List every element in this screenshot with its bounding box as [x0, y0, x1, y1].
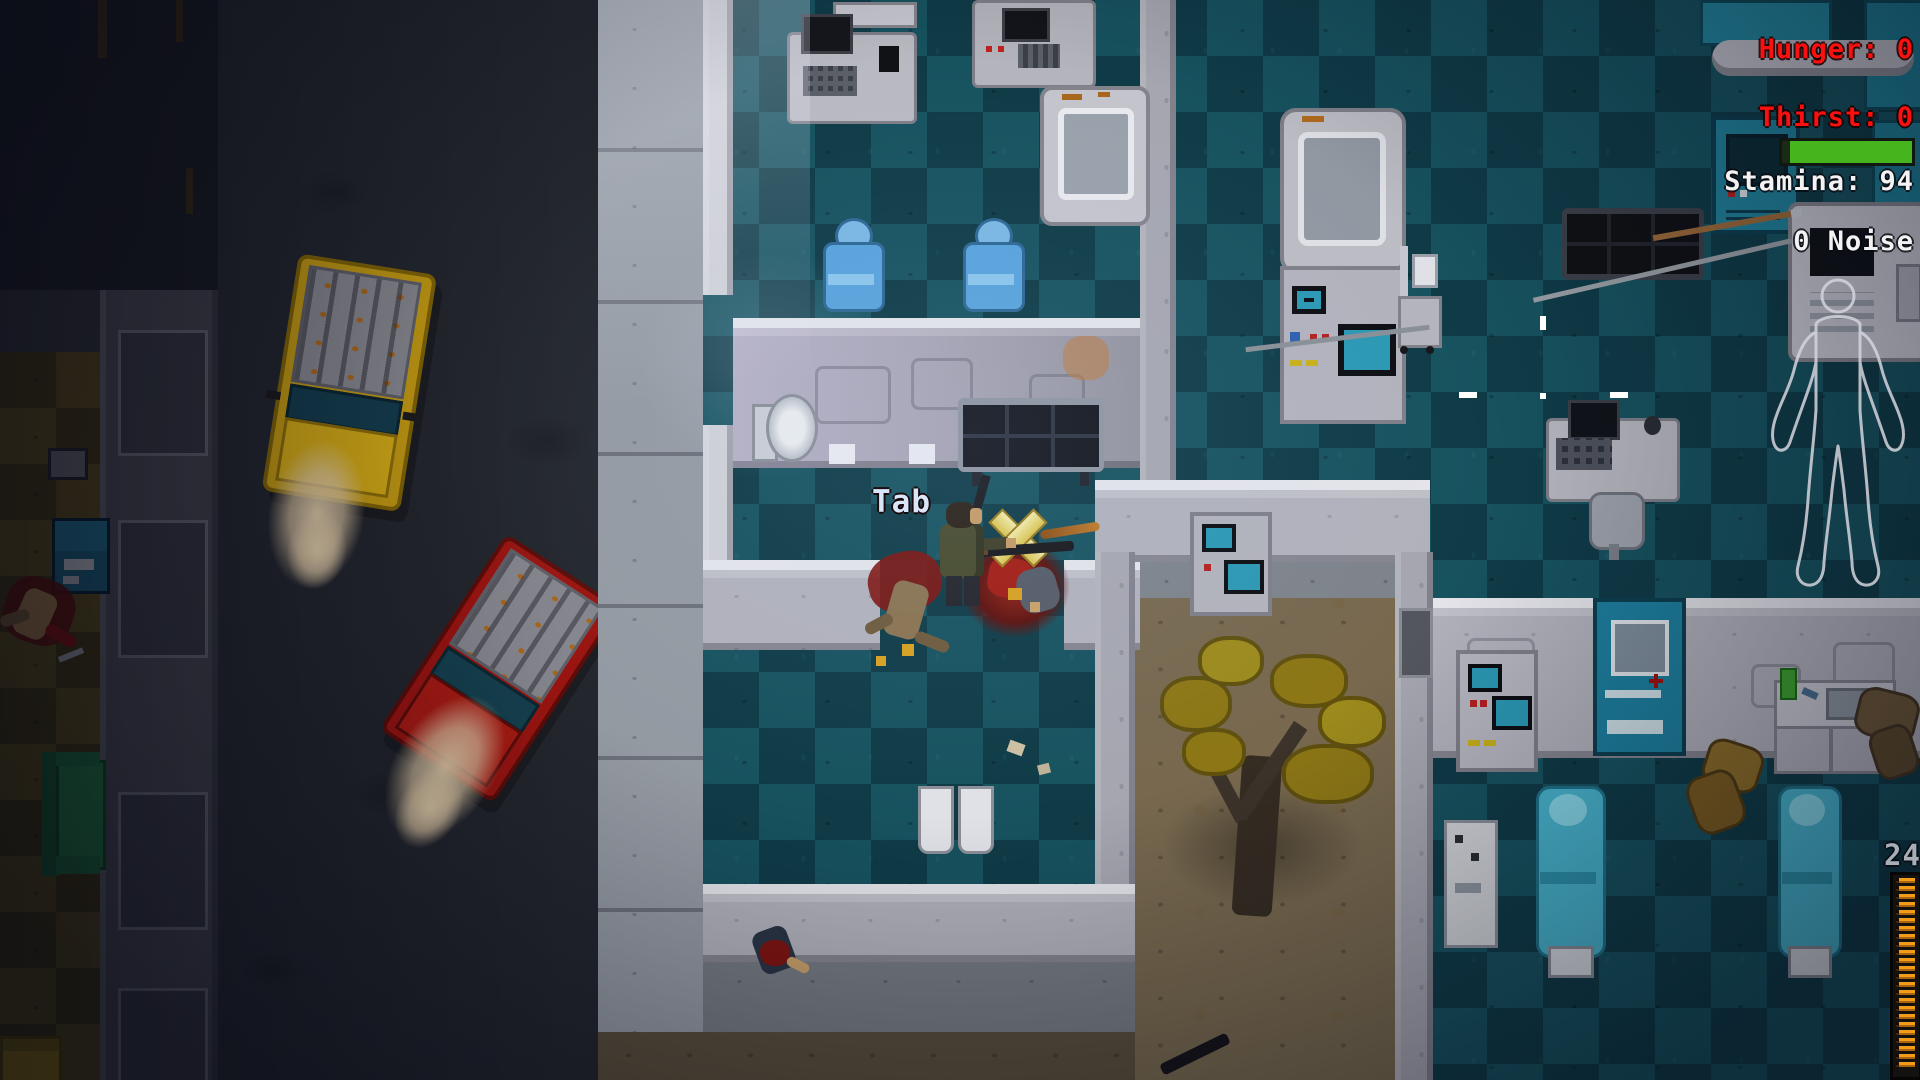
ammo-round — [1896, 942, 1915, 947]
sofa-cushions — [963, 405, 1099, 467]
wall-roomB-south-west — [703, 560, 880, 650]
ammo-round — [1896, 974, 1915, 979]
office-chair — [1585, 492, 1643, 562]
corpse-loot — [876, 656, 886, 666]
tree-foliage — [1198, 636, 1264, 686]
ammo-round — [1896, 1054, 1915, 1059]
urinal — [958, 786, 994, 854]
ammo-round — [1896, 998, 1915, 1003]
hunger-readout: Hunger: 0 — [1759, 34, 1914, 65]
crosshair-icon — [1540, 316, 1546, 330]
corpse-limb — [785, 955, 811, 975]
pillow — [1549, 794, 1587, 826]
ammo-round — [1896, 910, 1915, 915]
ammo-count: 24 — [1884, 838, 1920, 872]
rust-speck — [1302, 116, 1324, 122]
stamina-bar-fill — [1790, 141, 1912, 163]
wall-roomB-east — [1140, 318, 1176, 480]
machine-dot — [1471, 853, 1479, 861]
office-desk — [1546, 414, 1678, 498]
ammo-round — [1896, 1030, 1915, 1035]
incubator-machine — [1040, 86, 1150, 226]
screen — [1202, 524, 1236, 552]
label-yellow — [1468, 740, 1480, 746]
office-desk — [972, 0, 1090, 90]
rust-speck — [1098, 92, 1110, 97]
apartment-building — [0, 0, 218, 1080]
blanket-band — [1540, 872, 1596, 884]
wall-roomC-east — [1095, 552, 1135, 884]
street-stain — [300, 170, 370, 214]
player-legs — [946, 576, 962, 606]
machine-slot — [1455, 883, 1481, 893]
incubator-window — [1058, 108, 1134, 200]
sidewalk — [598, 0, 703, 1080]
player-face — [970, 508, 982, 524]
door-window — [1611, 620, 1669, 676]
ammo-round — [1896, 1014, 1915, 1019]
ammo-round — [1896, 934, 1915, 939]
ammo-round — [1896, 966, 1915, 971]
machine-dot — [1455, 835, 1463, 843]
screen — [1468, 664, 1502, 692]
wall-base-trim — [909, 444, 935, 464]
iv-cart — [1392, 246, 1444, 358]
hospital-bed — [1536, 786, 1600, 972]
label-yellow — [1290, 360, 1302, 366]
ammo-round — [1896, 990, 1915, 995]
chair-band — [828, 274, 874, 285]
computer-monitor — [1568, 400, 1620, 440]
ammo-round — [1896, 902, 1915, 907]
waiting-chair — [963, 218, 1019, 314]
thirst-readout: Thirst: 0 — [1759, 102, 1914, 133]
screen — [1492, 696, 1532, 730]
tree-foliage — [1182, 728, 1246, 776]
keyboard — [1018, 44, 1060, 68]
computer-monitor — [801, 14, 853, 54]
teal-medical-door — [1593, 598, 1686, 756]
player-body — [940, 524, 984, 578]
green-bottle — [1780, 668, 1797, 700]
ammo-round — [1896, 926, 1915, 931]
toilet — [752, 386, 814, 464]
chair-band — [968, 274, 1014, 285]
player-hand — [1006, 538, 1016, 548]
status-led — [986, 46, 992, 52]
scanner-window — [1298, 132, 1386, 246]
ammo-round — [1896, 950, 1915, 955]
stamina-readout: Stamina: 94 — [1724, 166, 1914, 197]
lab-machine — [1456, 650, 1538, 772]
waiting-chair — [823, 218, 879, 314]
red-cross-icon — [1649, 674, 1663, 688]
building-dim-overlay — [0, 0, 218, 1080]
wall-window — [1399, 608, 1433, 678]
iv-bag — [1412, 254, 1438, 288]
chair-stem — [1609, 544, 1619, 560]
ammo-round — [1896, 1022, 1915, 1027]
corpse-limb — [913, 630, 951, 655]
street-stain — [505, 415, 591, 467]
blanket-band — [1782, 872, 1832, 884]
cart-wheel — [1400, 346, 1408, 354]
ammo-round — [1896, 1038, 1915, 1043]
ct-scanner-machine — [1280, 108, 1398, 416]
ammo-magazine-bar — [1890, 872, 1920, 1080]
hospital-west-wall — [703, 0, 733, 295]
ammo-round — [1896, 918, 1915, 923]
ammo-round — [1896, 1006, 1915, 1011]
debris-pile — [1850, 686, 1920, 776]
tree-foliage — [1318, 696, 1386, 748]
street-stain — [240, 950, 306, 990]
screen — [1292, 286, 1326, 314]
wall-panel-outline — [815, 366, 891, 424]
debris-pile — [1686, 742, 1766, 838]
urinal — [918, 786, 954, 854]
player-survivor — [928, 496, 1078, 616]
rust-speck — [1062, 94, 1082, 100]
game-viewport[interactable]: Hunger: 0 Thirst: 0 Stamina: 94 0 Noise … — [0, 0, 1920, 1080]
sofa-leg — [1080, 472, 1089, 486]
navy-sofa — [958, 398, 1104, 482]
body-outline-icon — [1756, 262, 1920, 602]
keyboard — [1556, 438, 1612, 470]
label-yellow — [1306, 360, 1318, 366]
stamina-bar — [1779, 138, 1915, 166]
player-legs — [964, 576, 980, 606]
zombie-corpse — [746, 920, 812, 990]
keyboard — [803, 66, 857, 96]
door-kickplate — [1607, 720, 1663, 734]
toilet-bowl — [766, 394, 818, 462]
iv-machine — [1444, 820, 1498, 948]
label-yellow — [1484, 740, 1496, 746]
ammo-round — [1896, 886, 1915, 891]
cart-wheel — [1426, 346, 1434, 354]
interact-prompt: Tab — [872, 484, 931, 520]
computer-monitor — [1002, 8, 1050, 42]
dead-tree — [1142, 636, 1402, 936]
ammo-round — [1896, 878, 1915, 883]
ammo-round — [1896, 894, 1915, 899]
pillow — [1789, 794, 1825, 826]
lab-machine — [1190, 512, 1272, 616]
crosshair-icon — [1540, 393, 1546, 399]
street-dirt-strip — [598, 1032, 1135, 1080]
ammo-round — [1896, 1046, 1915, 1051]
truck-bed — [291, 265, 422, 399]
ammo-round — [1896, 958, 1915, 963]
office-desk — [787, 18, 917, 128]
noise-readout: 0 Noise — [1793, 226, 1914, 257]
footboard — [1548, 946, 1594, 978]
corpse-loot — [902, 644, 914, 656]
cart-frame — [1398, 296, 1442, 348]
hospital-west-wall — [703, 425, 733, 560]
tree-foliage — [1282, 744, 1374, 804]
button-red — [1470, 700, 1477, 707]
crosshair-icon — [1610, 392, 1628, 398]
status-led — [998, 46, 1004, 52]
button-red — [1204, 564, 1211, 571]
footboard — [1788, 946, 1832, 978]
door-handle — [1605, 690, 1661, 698]
blood-smear-wall — [1063, 336, 1109, 380]
button-red — [1480, 700, 1487, 707]
pc-tower — [879, 46, 899, 72]
hospital-bed — [1778, 786, 1836, 972]
chair-seat — [1589, 492, 1645, 550]
wall-base-trim — [829, 444, 855, 464]
ammo-round — [1896, 982, 1915, 987]
crosshair-icon — [1459, 392, 1477, 398]
coffee-mug — [1644, 416, 1661, 435]
screen — [1224, 560, 1264, 594]
ammo-round — [1896, 1062, 1915, 1067]
